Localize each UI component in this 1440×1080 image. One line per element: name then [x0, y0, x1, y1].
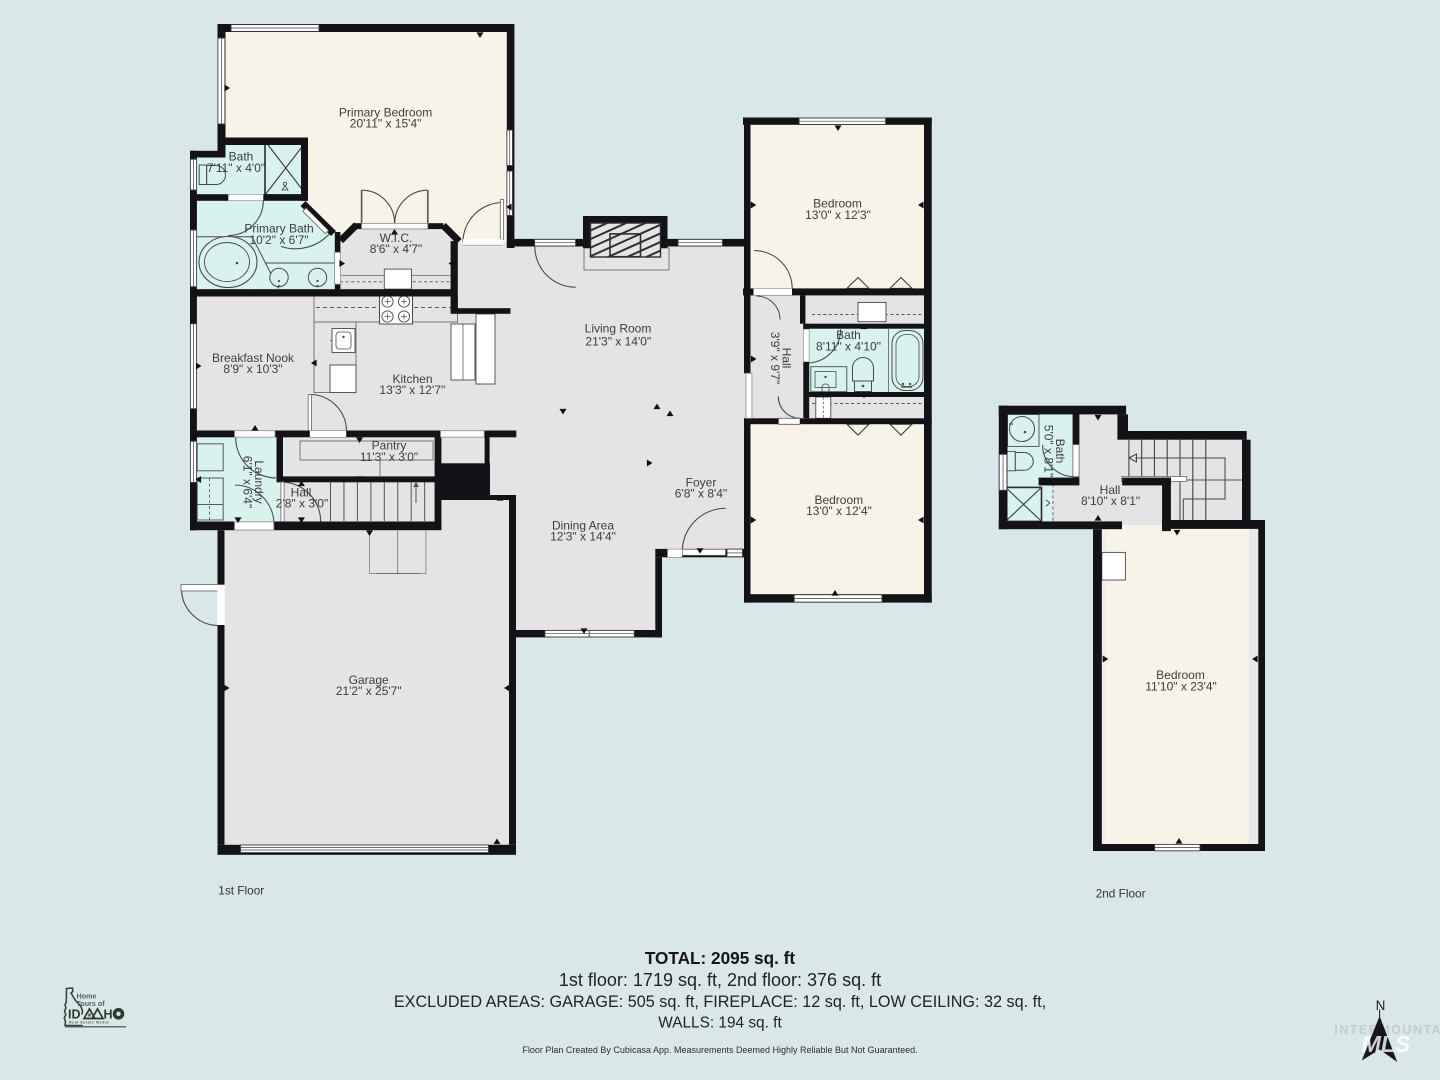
- svg-text:11'3" x 3'0": 11'3" x 3'0": [360, 450, 418, 464]
- svg-text:5'0" x 8'1": 5'0" x 8'1": [1042, 425, 1056, 477]
- svg-text:10'2" x 6'7": 10'2" x 6'7": [249, 233, 308, 247]
- svg-text:TOTAL: 2095 sq. ft: TOTAL: 2095 sq. ft: [645, 948, 796, 968]
- svg-text:21'2" x 25'7": 21'2" x 25'7": [336, 684, 402, 698]
- svg-text:N: N: [1376, 998, 1386, 1013]
- svg-text:Living Room: Living Room: [585, 322, 652, 336]
- svg-text:8'10" x 8'1": 8'10" x 8'1": [1081, 494, 1140, 508]
- svg-text:2nd Floor: 2nd Floor: [1096, 887, 1146, 901]
- svg-text:11'10" x 23'4": 11'10" x 23'4": [1145, 680, 1217, 694]
- svg-text:8'9" x 10'3": 8'9" x 10'3": [223, 362, 282, 376]
- svg-text:1st floor: 1719 sq. ft, 2nd fl: 1st floor: 1719 sq. ft, 2nd floor: 376 s…: [559, 970, 881, 990]
- svg-text:6'1" x 6'4": 6'1" x 6'4": [241, 456, 255, 508]
- svg-text:8'11" x 4'10": 8'11" x 4'10": [816, 339, 881, 353]
- svg-text:7'11" x 4'0": 7'11" x 4'0": [207, 161, 265, 175]
- svg-text:WALLS: 194 sq. ft: WALLS: 194 sq. ft: [658, 1015, 782, 1032]
- svg-text:Real Estate Media: Real Estate Media: [69, 1020, 109, 1024]
- svg-text:21'3" x 14'0": 21'3" x 14'0": [585, 335, 651, 349]
- svg-text:2'8" x 3'0": 2'8" x 3'0": [276, 497, 328, 511]
- svg-text:8'6" x 4'7": 8'6" x 4'7": [370, 242, 422, 256]
- svg-text:Floor Plan Created By Cubicasa: Floor Plan Created By Cubicasa App. Meas…: [522, 1045, 917, 1055]
- svg-text:MLS: MLS: [1362, 1031, 1411, 1057]
- svg-text:12'3" x 14'4": 12'3" x 14'4": [550, 529, 616, 543]
- svg-text:Tours of: Tours of: [77, 999, 106, 1008]
- svg-text:EXCLUDED AREAS: GARAGE: 505 sq: EXCLUDED AREAS: GARAGE: 505 sq. ft, FIRE…: [394, 993, 1046, 1011]
- svg-text:20'11" x 15'4": 20'11" x 15'4": [350, 117, 422, 131]
- svg-text:13'0" x 12'4": 13'0" x 12'4": [806, 504, 872, 518]
- svg-text:13'3" x 12'7": 13'3" x 12'7": [379, 383, 445, 397]
- svg-text:13'0" x 12'3": 13'0" x 12'3": [805, 208, 871, 222]
- svg-text:6'8" x 8'4": 6'8" x 8'4": [675, 487, 727, 501]
- svg-text:3'9" x 9'7": 3'9" x 9'7": [768, 332, 782, 384]
- svg-text:1st Floor: 1st Floor: [218, 884, 264, 898]
